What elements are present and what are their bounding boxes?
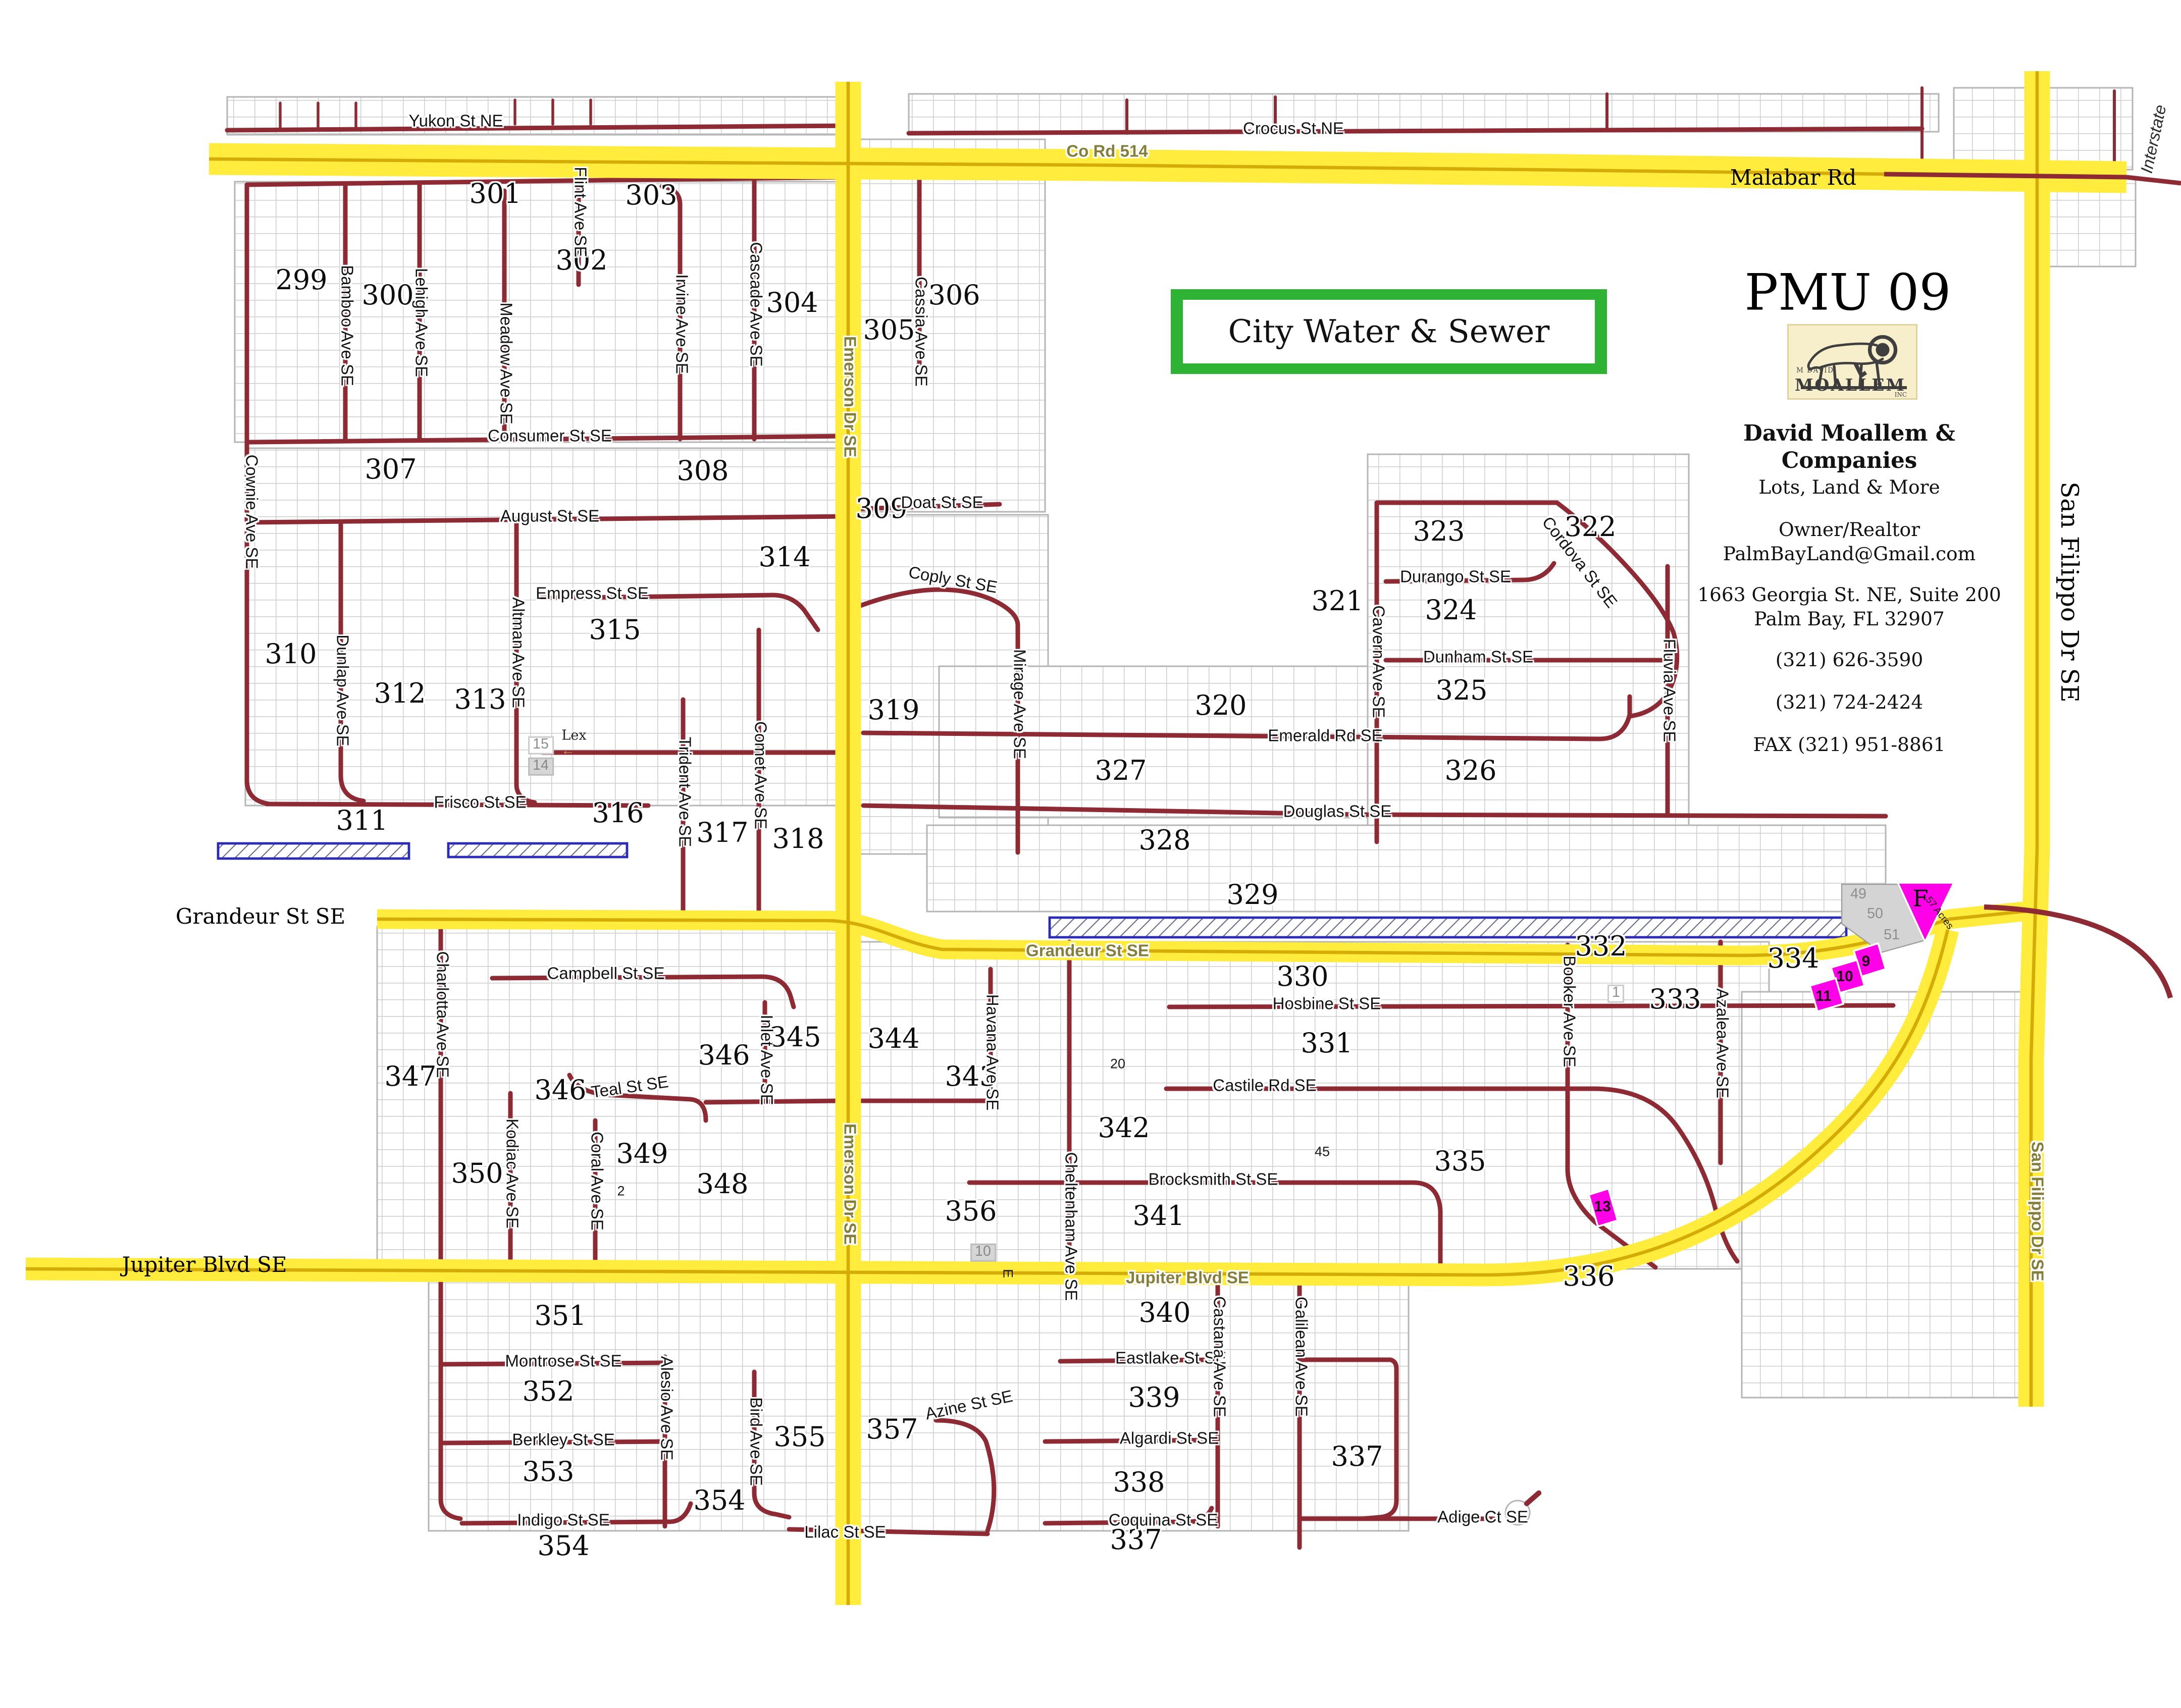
map-text-label: Yukon St NE [408,115,503,131]
page-title: PMU 09 [1745,263,1951,322]
section-number-label: 322 [1564,515,1616,542]
section-number-label: 335 [1434,1149,1486,1177]
map-text-label: Crocus St NE [1243,122,1344,139]
section-number-label: 356 [945,1199,997,1226]
section-number-label: 304 [766,291,818,318]
map-text-label: Havana Ave SE [982,994,999,1111]
map-text-label: 51 [1884,929,1900,943]
map-text-label: Alesio Ave SE [657,1356,673,1461]
map-text-label: 20 [1110,1058,1125,1072]
map-canvas: 2993003013023033043053063073083093103113… [0,0,2181,1708]
map-text-label: Malabar Rd [1730,168,1856,189]
map-text-label: Booker Ave SE [1560,955,1576,1067]
section-number-label: 354 [537,1534,589,1561]
map-text-label: ← [561,744,575,758]
section-number-label: 333 [1649,987,1701,1015]
map-text-label: Brocksmith St SE [1149,1173,1278,1190]
map-text-label: Cownie Ave SE [242,455,258,569]
map-text-label: Azalea Ave SE [1712,988,1729,1098]
section-number-label: 348 [696,1172,748,1199]
section-number-label: 301 [469,182,521,209]
map-text-label: 11 [1815,990,1832,1005]
section-number-label: 353 [522,1460,574,1487]
map-text-label: Bird Ave SE [746,1397,763,1486]
section-number-label: 331 [1301,1031,1353,1058]
section-number-label: 318 [772,827,824,854]
logo-inc: INC [1895,391,1907,398]
contact-card: David Moallem & Companies Lots, Land & M… [1683,421,2016,756]
section-number-label: 334 [1767,946,1819,974]
contact-email: PalmBayLand@Gmail.com [1683,542,2016,565]
section-number-label: 303 [625,183,677,210]
map-text-label: Irvine Ave SE [672,274,689,374]
section-number-label: 347 [384,1064,436,1092]
section-number-label: 311 [336,809,388,836]
section-number-label: 325 [1435,678,1487,706]
map-text-label: Cavern Ave SE [1369,605,1385,718]
map-text-label: 10 [1836,971,1853,986]
section-number-label: 308 [677,459,729,486]
section-number-label: 346 [698,1043,750,1071]
section-number-label: 350 [451,1161,503,1189]
section-number-label: 341 [1132,1204,1184,1231]
section-number-label: 309 [855,497,907,524]
contact-phone2: (321) 724-2424 [1683,690,2016,714]
section-number-label: 357 [866,1417,918,1445]
map-text-label: 1 [1607,985,1625,1002]
map-text-label: Lex [561,731,586,744]
map-text-label: Grandeur St SE [1026,944,1149,961]
map-text-label: Frisco St SE [434,796,526,813]
map-text-label: San Filippo Dr SE [2028,1142,2044,1282]
map-text-label: Emerson Dr SE [840,1124,857,1245]
map-text-label: Montrose St SE [505,1355,621,1371]
section-number-label: 355 [773,1425,825,1452]
map-text-label: Co Rd 514 [1066,145,1148,162]
map-text-label: Jupiter Blvd SE [1126,1271,1249,1288]
map-text-label: 2 [617,1185,625,1199]
section-number-label: 337 [1331,1445,1383,1472]
map-text-label: Douglas St SE [1283,805,1392,822]
map-text-label: Hosbine St SE [1273,997,1381,1014]
map-text-label: Emerald Rd SE [1268,729,1382,746]
logo-name: MOALLEM [1795,376,1906,395]
map-text-label: Mirage Ave SE [1010,649,1026,759]
map-text-label: Meadow Ave SE [496,302,513,424]
contact-fax: FAX (321) 951-8861 [1683,732,2016,756]
section-number-label: 344 [867,1027,919,1054]
map-text-label: Adige Ct SE [1437,1511,1528,1527]
section-number-label: 305 [863,318,915,345]
section-number-label: 352 [522,1379,574,1407]
section-number-label: 337 [1110,1528,1162,1555]
section-number-label: 336 [1563,1264,1615,1292]
contact-company: David Moallem & Companies [1683,421,2016,476]
map-text-label: Comet Ave SE [751,721,767,829]
map-text-label: .57 Acres [1920,894,1953,932]
section-number-label: 319 [867,698,919,725]
map-text-label: Azine St SE [924,1390,1014,1424]
section-number-label: 338 [1113,1470,1165,1498]
map-text-label: Cassia Ave SE [911,277,928,387]
map-text-label: Charlotta Ave SE [433,951,449,1078]
map-text-label: 13 [1594,1201,1611,1216]
section-number-label: 307 [365,457,417,485]
map-text-label: 14 [528,758,553,775]
section-number-label: 326 [1444,759,1496,786]
map-labels: 2993003013023033043053063073083093103113… [0,0,2181,1708]
map-text-label: Castile Rd SE [1213,1079,1316,1096]
section-number-label: 327 [1095,759,1147,786]
contact-role: Owner/Realtor [1683,518,2016,542]
map-text-label: 50 [1867,908,1883,922]
map-text-label: Cascade Ave SE [746,242,763,366]
section-number-label: 340 [1138,1301,1190,1328]
map-text-label: Doat St SE [901,496,983,513]
section-number-label: 299 [275,268,327,295]
map-text-label: Algardi St SE [1120,1432,1219,1449]
map-text-label: E [1001,1269,1014,1278]
map-text-label: Flint Ave SE [570,167,587,257]
section-number-label: 349 [616,1142,668,1169]
section-number-label: 323 [1413,519,1465,547]
map-text-label: Indigo St SE [517,1514,609,1530]
contact-address1: 1663 Georgia St. NE, Suite 200 [1683,583,2016,607]
section-number-label: 317 [696,821,748,848]
section-number-label: 328 [1138,828,1190,856]
map-text-label: Campbell St SE [547,967,665,984]
map-text-label: Emerson Dr SE [840,336,857,457]
section-number-label: 320 [1195,693,1247,721]
map-text-label: Kodiac Ave SE [502,1118,519,1229]
section-number-label: 313 [454,687,506,715]
map-text-label: Grandeur St SE [176,907,345,928]
map-text-label: 15 [528,736,553,754]
contact-phone1: (321) 626-3590 [1683,649,2016,672]
section-number-label: 329 [1226,883,1278,910]
section-number-label: 306 [928,283,980,310]
section-number-label: 314 [758,545,810,572]
section-number-label: 345 [769,1025,821,1052]
map-text-label: Dunham St SE [1423,651,1533,667]
map-text-label: Bamboo Ave SE [337,265,354,386]
city-water-sewer-banner: City Water & Sewer [1171,289,1607,374]
logo-line1: M DAVID [1796,368,1834,376]
section-number-label: 332 [1575,934,1627,962]
moallem-logo: M DAVID MOALLEM INC [1787,324,1917,400]
section-number-label: 354 [693,1488,745,1516]
map-text-label: 49 [1850,888,1866,902]
section-number-label: 346 [534,1078,586,1105]
map-text-label: August St SE [500,510,599,526]
section-number-label: 315 [589,618,641,645]
map-text-label: Coquina St SE [1109,1514,1218,1530]
section-number-label: 300 [361,283,413,310]
map-text-label: Durango St SE [1400,570,1511,587]
map-text-label: Empress St SE [536,587,649,604]
map-text-label: Lilac St SE [804,1526,886,1542]
contact-tagline: Lots, Land & More [1683,476,2016,500]
map-text-label: Coral Ave SE [587,1132,604,1231]
section-number-label: 324 [1425,598,1477,625]
section-number-label: 310 [265,642,317,669]
map-text-label: Altman Ave SE [508,597,525,708]
map-text-label: Dunlap Ave SE [333,634,349,746]
map-text-label: Coply St SE [907,565,999,597]
map-text-label: 10 [970,1244,996,1261]
map-text-label: Trident Ave SE [675,737,692,847]
banner-text: City Water & Sewer [1183,300,1595,363]
map-text-label: Berkley St SE [512,1433,615,1450]
map-text-label: Fluvia Ave SE [1659,639,1676,742]
map-text-label: Lehigh Ave SE [411,268,428,377]
map-text-label: Jupiter Blvd SE [122,1255,287,1276]
map-text-label: 45 [1315,1146,1330,1159]
map-text-label: Teal St SE [590,1075,669,1102]
section-number-label: 321 [1311,589,1363,616]
map-text-label: Galilean Ave SE [1291,1297,1308,1417]
section-number-label: 330 [1276,965,1328,992]
contact-address2: Palm Bay, FL 32907 [1683,607,2016,630]
section-number-label: 351 [534,1304,586,1331]
map-text-label: Consumer St SE [488,430,612,446]
map-text-label: San Filippo Dr SE [2057,482,2081,702]
section-number-label: 342 [1098,1116,1150,1143]
map-text-label: Interstate [2140,103,2171,175]
map-text-label: 9 [1862,955,1871,971]
map-text-label: Cheltenham Ave SE [1061,1152,1078,1301]
section-number-label: 316 [592,801,644,828]
section-number-label: 312 [374,681,426,709]
map-text-label: Inlet Ave SE [757,1015,773,1105]
section-number-label: 339 [1128,1385,1180,1413]
map-text-label: Castana Ave SE [1210,1296,1226,1417]
